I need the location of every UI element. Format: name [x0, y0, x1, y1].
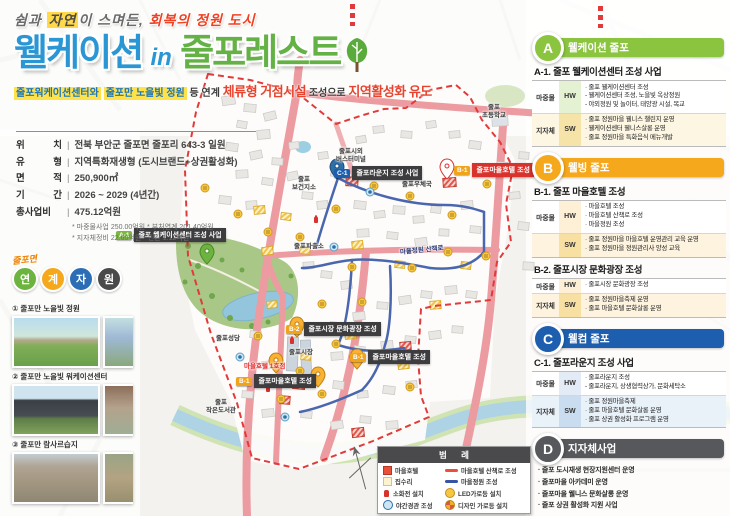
section-letter-badge: D: [532, 433, 564, 465]
photo-caption: ③ 줄포만 람사르습지: [12, 439, 134, 450]
legend-item: 소화전 설치: [383, 488, 445, 498]
resources-prefix: 줄포면: [11, 250, 52, 267]
map-label-b1-top: B-1줄포마을호텔 조성: [454, 163, 534, 177]
item-line: · 마을정원 조성: [585, 221, 724, 230]
item-line: · 줄포 상권 활성화 프로그램 운영: [585, 416, 724, 425]
label-village-hotel: 줄포마을호텔 조성: [254, 374, 315, 388]
poster-title: 웰케이션 in 줄포레스트: [14, 34, 454, 73]
poster-tagline: 줄포워케이션센터와 줄포만 노을빛 정원 등 연계 체류형 거점시설 조성으로 …: [14, 81, 454, 100]
actor-cell: 마중물: [532, 372, 559, 395]
linked-resources: 줄포면 연 계 자 원: [12, 252, 124, 292]
info-label: 총사업비: [16, 205, 62, 222]
legend-item: 마을호텔 산책로 조성: [445, 466, 531, 475]
items-cell: · 줄포 정원마을 마을호텔 운영관리 교육 운영 · 줄포 정원마을 정원관리…: [581, 234, 726, 257]
label-market: 줄포시장: [289, 349, 313, 357]
items-cell: · 줄포시장 문화광장 조성: [581, 279, 726, 293]
item-line: - 줄포라운지, 상생협력상가, 문화세탁소: [585, 383, 724, 392]
info-row-location: 위 치|전북 부안군 줄포면 줄포리 643-3 일원: [16, 138, 256, 155]
label-line: 작은도서관: [206, 407, 236, 415]
info-value: 475.12억원: [74, 205, 121, 222]
table-row: 마중물 HW · 줄포시장 문화광장 조성: [532, 279, 726, 293]
label-village-hotel: 줄포마을호텔 조성: [472, 163, 533, 177]
section-letter-badge: A: [532, 32, 564, 64]
label-health-center: 줄포보건지소: [292, 176, 316, 192]
legend-item: 디자인 가로등 설치: [445, 500, 531, 510]
info-row-period: 기 간|2026 ~ 2029 (4년간): [16, 188, 256, 205]
legend-label: LED가로등 설치: [458, 489, 501, 498]
trail-line-icon: [445, 469, 458, 472]
block-heading: A-1. 줄포 웰케이션센터 조성 사업: [534, 64, 726, 78]
project-info: 위 치|전북 부안군 줄포면 줄포리 643-3 일원 유 형|지역특화재생형 …: [16, 131, 256, 244]
item-line: - 야외정원 및 놀이터, 태양광 시설, 목교: [585, 101, 724, 110]
budget-notes: * 마중물사업 250.00억원 * 부처연계 201.40억원 * 지자체정비…: [72, 223, 256, 244]
items-cell: · 줄포 웰케이션센터 조성 - 웰케이션센터 조성, 노을빛 옥상정원 - 야…: [581, 81, 726, 113]
table-row: 마중물 HW · 줄포 웰케이션센터 조성 - 웰케이션센터 조성, 노을빛 옥…: [532, 81, 726, 113]
info-label: 면 적: [16, 171, 62, 188]
table-row: SW · 줄포 정원마을 마을호텔 운영관리 교육 운영 · 줄포 정원마을 정…: [532, 233, 726, 257]
program-panel: A 웰케이션 줄포 A-1. 줄포 웰케이션센터 조성 사업 마중물 HW · …: [532, 34, 726, 516]
legend-item: 마을호텔: [383, 466, 445, 475]
night-view-icon: [383, 500, 393, 510]
tagline-part: 조성으로: [306, 88, 348, 99]
section-d: D 지자체사업 · 줄포 도시재생 현장지원센터 운영 · 줄포마을 아카데미 …: [532, 435, 726, 516]
subtitle-highlight: 자연: [47, 12, 79, 28]
item-line: · 웰케이션센터 웰니스살롱 운영: [585, 125, 724, 134]
divider: |: [67, 155, 69, 172]
label-church: 줄포성당: [216, 335, 240, 343]
bullet-line: · 줄포마을 아카데미 운영: [538, 477, 726, 489]
legend-label: 소화전 설치: [393, 489, 424, 498]
legend-label: 마을호텔: [395, 466, 418, 475]
photo-caption: ① 줄포만 노을빛 정원: [12, 303, 134, 314]
badge-gye: 계: [40, 266, 66, 292]
program-table: 마중물 HW · 마을호텔 조성 · 마을호텔 산책로 조성 · 마을정원 조성…: [532, 200, 726, 258]
type-cell: HW: [559, 372, 581, 395]
section-a-header: A 웰케이션 줄포: [532, 34, 726, 60]
badge-b1: B-1: [350, 353, 366, 362]
badge-won: 원: [96, 266, 122, 292]
items-cell: · 줄포 정원마을축제 운영 · 줄포 마을호텔 문화살롱 운영: [581, 294, 726, 317]
block-heading: C-1. 줄포라운지 조성 사업: [534, 355, 726, 369]
item-line: · 줄포 정원마을축제 운영: [585, 296, 724, 305]
map-legend: 범 례 마을호텔 마을호텔 산책로 조성 집수리 마을정원 조성 소화전 설치 …: [377, 446, 531, 514]
photo-sunset-garden: [12, 316, 100, 368]
item-line: · 줄포 정원마을축제: [585, 398, 724, 407]
label-line: 초등학교: [482, 112, 506, 120]
label-police-box: 줄포파출소: [294, 243, 324, 251]
info-row-type: 유 형|지역특화재생형 (도시브랜드+상권활성화): [16, 155, 256, 172]
actor-cell: [532, 234, 559, 257]
item-line: · 줄포라운지 조성: [585, 374, 724, 383]
bullet-line: · 줄포마을 웰니스 문화살롱 운영: [538, 489, 726, 501]
subtitle-part: 이 스며든,: [78, 12, 148, 28]
item-line: · 줄포 정원마을 마을호텔 운영관리 교육 운영: [585, 236, 724, 245]
legend-label: 마을호텔 산책로 조성: [461, 466, 517, 475]
badge-b2: B-2: [286, 325, 302, 334]
section-c: C 웰컴 줄포 C-1. 줄포라운지 조성 사업 마중물 HW · 줄포라운지 …: [532, 325, 726, 429]
tagline-red: 체류형 거점시설: [223, 84, 306, 99]
legend-item: 야간경관 조성: [383, 500, 445, 510]
label-hotel-no1: 마을호텔 1호점: [244, 363, 285, 371]
items-cell: · 줄포 정원마을 웰니스 챌린지 운영 · 웰케이션센터 웰니스살롱 운영 ·…: [581, 114, 726, 146]
badge-b1: B-1: [236, 377, 252, 386]
legend-body: 마을호텔 마을호텔 산책로 조성 집수리 마을정원 조성 소화전 설치 LED가…: [378, 463, 530, 513]
actor-cell: 마중물: [532, 201, 559, 233]
label-market-plaza: 줄포시장 문화광장 조성: [304, 322, 380, 336]
table-row: 지자체 SW · 줄포 정원마을축제 · 줄포 마을호텔 문화살롱 운영 · 줄…: [532, 395, 726, 428]
photo-caption: ② 줄포만 노을빛 워케이션센터: [12, 371, 134, 382]
led-light-icon: [445, 488, 455, 498]
badge-ja: 자: [68, 266, 94, 292]
section-letter-badge: C: [532, 323, 564, 355]
section-title: 웰케이션 줄포: [542, 38, 724, 57]
photo-row: [12, 452, 134, 504]
poster-subtitle: 쉼과 자연이 스며든, 회복의 정원 도시: [14, 10, 454, 30]
label-line: 보건지소: [292, 184, 316, 192]
tagline-highlight: 줄포만 노을빛 정원: [104, 87, 187, 100]
section-c-header: C 웰컴 줄포: [532, 325, 726, 351]
info-value: 전북 부안군 줄포면 줄포리 643-3 일원: [74, 138, 225, 155]
program-table: 마중물 HW · 줄포 웰케이션센터 조성 - 웰케이션센터 조성, 노을빛 옥…: [532, 80, 726, 147]
actor-cell: 지자체: [532, 294, 559, 317]
item-line: · 줄포 정원마을 정원관리사 양성 교육: [585, 245, 724, 254]
photo-workation-center: [12, 384, 100, 436]
design-light-icon: [445, 500, 455, 510]
actor-cell: 마중물: [532, 81, 559, 113]
items-cell: · 마을호텔 조성 · 마을호텔 산책로 조성 · 마을정원 조성: [581, 201, 726, 233]
type-cell: HW: [559, 201, 581, 233]
label-library: 줄포작은도서관: [206, 399, 236, 415]
section-title: 지자체사업: [542, 439, 724, 458]
budget-note: * 마중물사업 250.00억원 * 부처연계 201.40억원: [72, 223, 256, 234]
photo-row: [12, 384, 134, 436]
resources-badges: 연 계 자 원: [12, 266, 124, 292]
section-letter-badge: B: [532, 152, 564, 184]
legend-item: LED가로등 설치: [445, 488, 531, 498]
type-cell: SW: [559, 234, 581, 257]
map-label-b1-left: B-1줄포마을호텔 조성: [236, 374, 316, 388]
legend-label: 마을정원 조성: [461, 477, 498, 486]
village-hotel-icon: [383, 466, 392, 475]
type-cell: SW: [559, 396, 581, 428]
legend-title: 범 례: [378, 447, 530, 463]
items-cell: · 줄포 정원마을축제 · 줄포 마을호텔 문화살롱 운영 · 줄포 상권 활성…: [581, 396, 726, 428]
legend-item: 집수리: [383, 477, 445, 486]
block-heading: B-1. 줄포 마을호텔 조성: [534, 184, 726, 198]
subtitle-part: 쉼과: [14, 12, 47, 28]
program-table: 마중물 HW · 줄포라운지 조성 - 줄포라운지, 상생협력상가, 문화세탁소…: [532, 371, 726, 429]
label-line: 줄포: [206, 399, 236, 407]
info-label: 유 형: [16, 155, 62, 172]
header: 쉼과 자연이 스며든, 회복의 정원 도시 웰케이션 in 줄포레스트 줄포워케…: [14, 10, 454, 100]
item-line: · 마을호텔 산책로 조성: [585, 212, 724, 221]
poster-page: { "header": { "subtitle": {"p1": "쉼과 ", …: [0, 0, 730, 516]
section-title: 웰빙 줄포: [542, 158, 724, 177]
map-label-c1: C-1줄포라운지 조성 사업: [334, 166, 422, 180]
section-a: A 웰케이션 줄포 A-1. 줄포 웰케이션센터 조성 사업 마중물 HW · …: [532, 34, 726, 147]
bullet-line: · 줄포 상권 활성화 지원 사업: [538, 500, 726, 512]
table-row: 지자체 SW · 줄포 정원마을축제 운영 · 줄포 마을호텔 문화살롱 운영: [532, 293, 726, 317]
section-d-header: D 지자체사업: [532, 435, 726, 461]
badge-yeon: 연: [12, 266, 38, 292]
tagline-part: 등 연계: [187, 88, 223, 99]
item-line: · 줄포 마을호텔 문화살롱 운영: [585, 305, 724, 314]
type-cell: HW: [559, 81, 581, 113]
badge-c1: C-1: [334, 169, 350, 178]
badge-b1: B-1: [454, 166, 470, 175]
table-row: 지자체 SW · 줄포 정원마을 웰니스 챌린지 운영 · 웰케이션센터 웰니스…: [532, 113, 726, 146]
label-line: 줄포시외: [336, 148, 366, 156]
actor-cell: 지자체: [532, 114, 559, 146]
tagline-red: 지역활성화 유도: [348, 84, 431, 99]
resource-photos: ① 줄포만 노을빛 정원 ② 줄포만 노을빛 워케이션센터 ③ 줄포만 람사르습…: [12, 300, 134, 504]
divider: |: [67, 171, 69, 188]
tree-icon: [344, 37, 370, 73]
house-repair-icon: [383, 477, 392, 486]
info-value: 지역특화재생형 (도시브랜드+상권활성화): [74, 155, 237, 172]
title-welcation: 웰케이션: [14, 32, 142, 73]
photo-partial: [103, 452, 133, 504]
map-label-b1-mid: B-1줄포마을호텔 조성: [350, 350, 430, 364]
label-line: 줄포: [292, 176, 316, 184]
title-in: in: [150, 44, 171, 71]
actor-cell: 지자체: [532, 396, 559, 428]
map-label-b2: B-2줄포시장 문화광장 조성: [286, 322, 381, 336]
divider: |: [67, 188, 69, 205]
budget-note: * 지자체정비 22.60억원 * 민간 1.12억원: [72, 234, 256, 245]
item-line: · 줄포시장 문화광장 조성: [585, 281, 724, 290]
section-title: 웰컴 줄포: [542, 329, 724, 348]
item-line: · 줄포 정원마을 특화음식 메뉴개발: [585, 134, 724, 143]
items-cell: · 줄포라운지 조성 - 줄포라운지, 상생협력상가, 문화세탁소: [581, 372, 726, 395]
garden-line-icon: [445, 480, 458, 483]
item-line: · 줄포 마을호텔 문화살롱 운영: [585, 407, 724, 416]
info-row-area: 면 적|250,900㎡: [16, 171, 256, 188]
label-post-office: 줄포우체국: [402, 181, 432, 189]
label-bus-terminal: 줄포시외버스터미널: [336, 148, 366, 164]
block-heading: B-2. 줄포시장 문화광장 조성: [534, 262, 726, 276]
label-line: 줄포: [482, 104, 506, 112]
program-table: 마중물 HW · 줄포시장 문화광장 조성 지자체 SW · 줄포 정원마을축제…: [532, 278, 726, 318]
type-cell: SW: [559, 294, 581, 317]
type-cell: SW: [559, 114, 581, 146]
photo-partial: [103, 384, 133, 436]
type-cell: HW: [559, 279, 581, 293]
info-label: 기 간: [16, 188, 62, 205]
title-julpo-forest: 줄포레스트: [180, 32, 340, 73]
label-village-hotel: 줄포마을호텔 조성: [368, 350, 429, 364]
bullet-line: · 줄포 도시재생 현장지원센터 운영: [538, 465, 726, 477]
tagline-highlight: 줄포워케이션센터와: [14, 87, 101, 100]
item-line: · 마을호텔 조성: [585, 203, 724, 212]
section-b-header: B 웰빙 줄포: [532, 154, 726, 180]
info-label: 위 치: [16, 138, 62, 155]
photo-partial: [103, 316, 133, 368]
section-b: B 웰빙 줄포 B-1. 줄포 마을호텔 조성 마중물 HW · 마을호텔 조성…: [532, 154, 726, 318]
legend-label: 집수리: [395, 477, 412, 486]
legend-label: 야간경관 조성: [396, 501, 433, 510]
label-julpo-lounge: 줄포라운지 조성 사업: [352, 166, 422, 180]
info-value: 250,900㎡: [74, 171, 118, 188]
photo-row: [12, 316, 134, 368]
divider: |: [67, 138, 69, 155]
table-row: 마중물 HW · 줄포라운지 조성 - 줄포라운지, 상생협력상가, 문화세탁소: [532, 372, 726, 395]
label-elementary-school: 줄포초등학교: [482, 104, 506, 120]
label-line: 버스터미널: [336, 156, 366, 164]
legend-item: 마을정원 조성: [445, 477, 531, 486]
info-row-budget: 총사업비|475.12억원: [16, 205, 256, 222]
divider: |: [67, 205, 69, 222]
info-value: 2026 ~ 2029 (4년간): [74, 188, 159, 205]
table-row: 마중물 HW · 마을호텔 조성 · 마을호텔 산책로 조성 · 마을정원 조성: [532, 201, 726, 233]
fire-hydrant-icon: [384, 490, 389, 497]
actor-cell: 마중물: [532, 279, 559, 293]
legend-label: 디자인 가로등 설치: [458, 501, 508, 510]
photo-ramsar-wetland: [12, 452, 100, 504]
subtitle-red: 회복의 정원 도시: [149, 12, 256, 28]
